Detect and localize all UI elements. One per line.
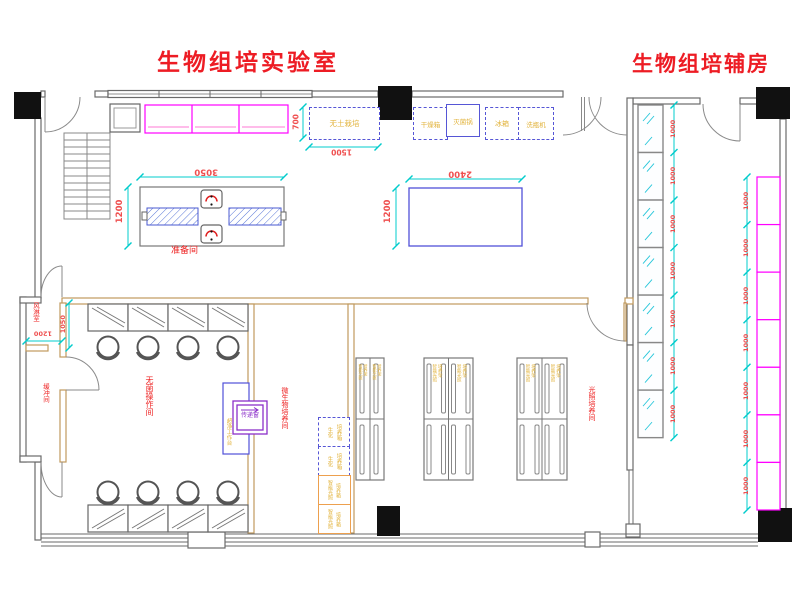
chair: [98, 337, 119, 358]
biochem-incubator-label: 生化: [326, 427, 334, 438]
glass-panel: [638, 390, 663, 438]
bottle-washer-label: 洗瓶机: [526, 119, 546, 129]
rack-slot: [535, 364, 539, 413]
drying-oven-box: 干燥箱: [413, 107, 448, 140]
chair: [218, 337, 239, 358]
glass-panel: [638, 200, 663, 248]
prep-table: [140, 187, 286, 246]
soilless-label: 无土栽培: [330, 118, 360, 129]
light-incubator-box: 智能光照 培养箱: [318, 504, 351, 534]
rack-slot: [374, 425, 378, 474]
rack-slot: [466, 425, 470, 474]
rack-slot: [452, 364, 456, 413]
rack-slot: [442, 364, 446, 413]
rack-slot: [466, 364, 470, 413]
biochem-incubator-label: 培养箱: [335, 424, 343, 441]
aux-bench-cell: [757, 320, 780, 368]
soilless-culture-box: 无土栽培: [309, 107, 380, 140]
rack-slot: [560, 364, 564, 413]
chair: [138, 482, 159, 503]
bottle-washer-box: 洗瓶机: [518, 107, 554, 140]
sterilizer-label: 灭菌锅: [453, 116, 473, 126]
rack-slot: [374, 364, 378, 413]
light-incubator-box: 智能光照 培养箱: [318, 475, 351, 505]
biochem-incubator-label: 培养箱: [335, 453, 343, 470]
rack-slot: [427, 364, 431, 413]
center-table: [409, 188, 522, 246]
aux-bench-cell: [757, 415, 780, 463]
rack-slot: [535, 425, 539, 474]
rack-slot: [360, 425, 364, 474]
biochem-incubator-label: 生化: [326, 456, 334, 467]
rack-slot: [560, 425, 564, 474]
aux-bench-cell: [757, 272, 780, 320]
storage-rack: [64, 133, 110, 219]
aux-bench-cell: [757, 367, 780, 415]
sterilizer-box: 灭菌锅: [446, 104, 480, 137]
aux-bench-cell: [757, 462, 780, 510]
glass-panel: [638, 295, 663, 343]
chair: [98, 482, 119, 503]
glass-panel: [638, 153, 663, 201]
pass-window: [233, 401, 267, 434]
chair: [178, 482, 199, 503]
light-incubator-label: 智能光照: [327, 480, 334, 500]
light-incubator-label: 培养箱: [335, 512, 342, 527]
plan-linework: [0, 0, 800, 600]
rack-slot: [520, 364, 524, 413]
light-incubator-label: 培养箱: [335, 483, 342, 498]
window-band-top: [108, 91, 312, 98]
glass-panel: [638, 343, 663, 391]
biochem-incubator-box: 生化 培养箱: [318, 417, 350, 447]
rack-slot: [427, 425, 431, 474]
chair: [138, 337, 159, 358]
rack-slot: [545, 364, 549, 413]
biochem-incubator-box: 生化 培养箱: [318, 446, 350, 476]
aux-bench-cell: [757, 177, 780, 225]
rack-slot: [452, 425, 456, 474]
doors: [41, 97, 740, 497]
rack-slot: [545, 425, 549, 474]
aux-bench-cell: [757, 225, 780, 273]
rack-slot: [360, 364, 364, 413]
drying-oven-label: 干燥箱: [421, 119, 441, 129]
fridge-label: 冰箱: [495, 119, 509, 129]
chair: [178, 337, 199, 358]
rack-slot: [442, 425, 446, 474]
magenta-bench-top: [145, 105, 288, 133]
chair: [218, 482, 239, 503]
rack-slot: [520, 425, 524, 474]
glass-panel: [638, 105, 663, 153]
light-incubator-label: 智能光照: [327, 509, 334, 529]
glass-panel: [638, 248, 663, 296]
wall-cabinet: [110, 104, 140, 132]
fridge-box: 冰箱: [485, 107, 519, 140]
floor-plan: 生物组培实验室 生物组培辅房 准备间 无菌操作间 风淋室 缓冲间 微生物培养间 …: [0, 0, 800, 600]
